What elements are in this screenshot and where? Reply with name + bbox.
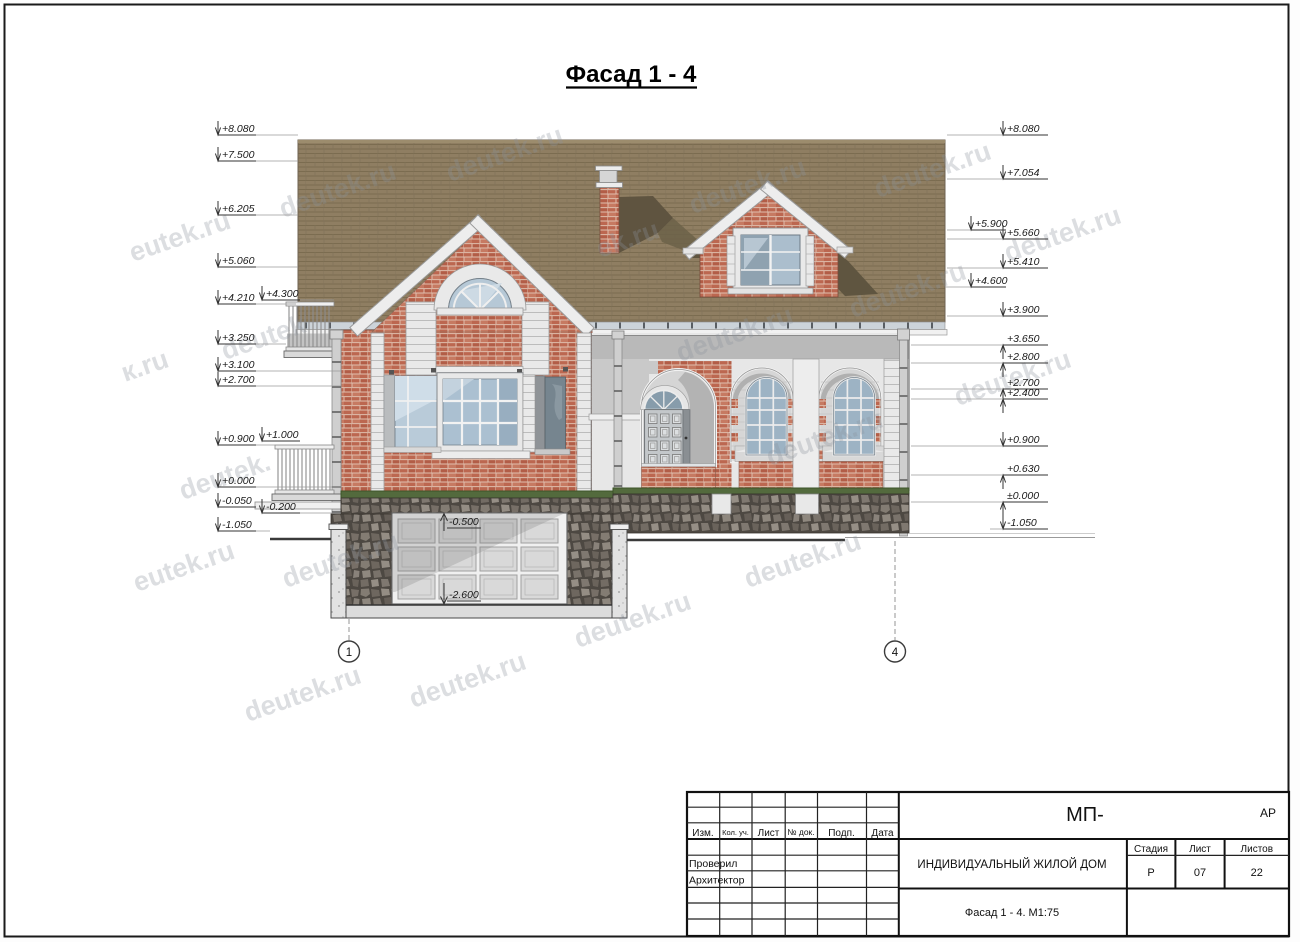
svg-text:Проверил: Проверил <box>689 858 737 870</box>
svg-text:+5.900: +5.900 <box>975 218 1008 230</box>
svg-text:+8.080: +8.080 <box>1007 123 1040 135</box>
svg-text:Архитектор: Архитектор <box>689 875 745 887</box>
svg-text:Фасад 1 - 4. М1:75: Фасад 1 - 4. М1:75 <box>965 907 1059 919</box>
svg-text:+3.650: +3.650 <box>1007 333 1040 345</box>
svg-text:-2.600: -2.600 <box>449 589 479 601</box>
svg-text:+7.054: +7.054 <box>1007 167 1040 179</box>
svg-text:+4.300: +4.300 <box>266 288 299 300</box>
svg-text:Листов: Листов <box>1241 844 1274 855</box>
svg-text:+7.500: +7.500 <box>222 149 255 161</box>
svg-text:+6.205: +6.205 <box>222 203 255 215</box>
svg-text:07: 07 <box>1194 867 1206 879</box>
svg-text:+3.900: +3.900 <box>1007 304 1040 316</box>
svg-text:+3.250: +3.250 <box>222 332 255 344</box>
svg-text:Лист: Лист <box>1189 844 1211 855</box>
svg-text:Фасад 1 - 4: Фасад 1 - 4 <box>566 61 697 88</box>
svg-text:АР: АР <box>1260 806 1276 820</box>
svg-text:+4.210: +4.210 <box>222 292 255 304</box>
svg-text:+5.660: +5.660 <box>1007 227 1040 239</box>
svg-text:Стадия: Стадия <box>1134 844 1168 855</box>
svg-text:-0.050: -0.050 <box>222 495 252 507</box>
svg-text:-0.200: -0.200 <box>266 501 296 513</box>
svg-text:+2.800: +2.800 <box>1007 351 1040 363</box>
svg-text:+0.000: +0.000 <box>222 475 255 487</box>
svg-text:+5.410: +5.410 <box>1007 256 1040 268</box>
svg-text:-1.050: -1.050 <box>222 519 252 531</box>
svg-text:+0.630: +0.630 <box>1007 463 1040 475</box>
svg-text:-1.050: -1.050 <box>1007 517 1037 529</box>
svg-text:№ док.: № док. <box>787 827 814 837</box>
svg-text:22: 22 <box>1251 867 1263 879</box>
svg-text:+5.060: +5.060 <box>222 255 255 267</box>
svg-text:+0.900: +0.900 <box>1007 434 1040 446</box>
svg-text:Дата: Дата <box>871 828 894 839</box>
svg-text:+3.100: +3.100 <box>222 359 255 371</box>
svg-text:Р: Р <box>1147 867 1154 879</box>
svg-text:4: 4 <box>892 647 899 659</box>
svg-text:+4.600: +4.600 <box>975 275 1008 287</box>
svg-text:+2.400: +2.400 <box>1007 387 1040 399</box>
svg-text:+0.900: +0.900 <box>222 433 255 445</box>
svg-text:Кол. уч.: Кол. уч. <box>722 828 749 837</box>
svg-text:-0.500: -0.500 <box>449 516 479 528</box>
svg-text:Изм.: Изм. <box>692 828 713 839</box>
svg-text:Лист: Лист <box>758 828 780 839</box>
svg-text:+1.000: +1.000 <box>266 429 299 441</box>
svg-text:Подп.: Подп. <box>828 828 855 839</box>
svg-text:МП-: МП- <box>1066 804 1104 826</box>
svg-text:±0.000: ±0.000 <box>1007 490 1039 502</box>
svg-text:+2.700: +2.700 <box>222 374 255 386</box>
svg-text:1: 1 <box>346 647 352 659</box>
svg-text:+8.080: +8.080 <box>222 123 255 135</box>
svg-text:ИНДИВИДУАЛЬНЫЙ ЖИЛОЙ ДОМ: ИНДИВИДУАЛЬНЫЙ ЖИЛОЙ ДОМ <box>917 858 1106 871</box>
